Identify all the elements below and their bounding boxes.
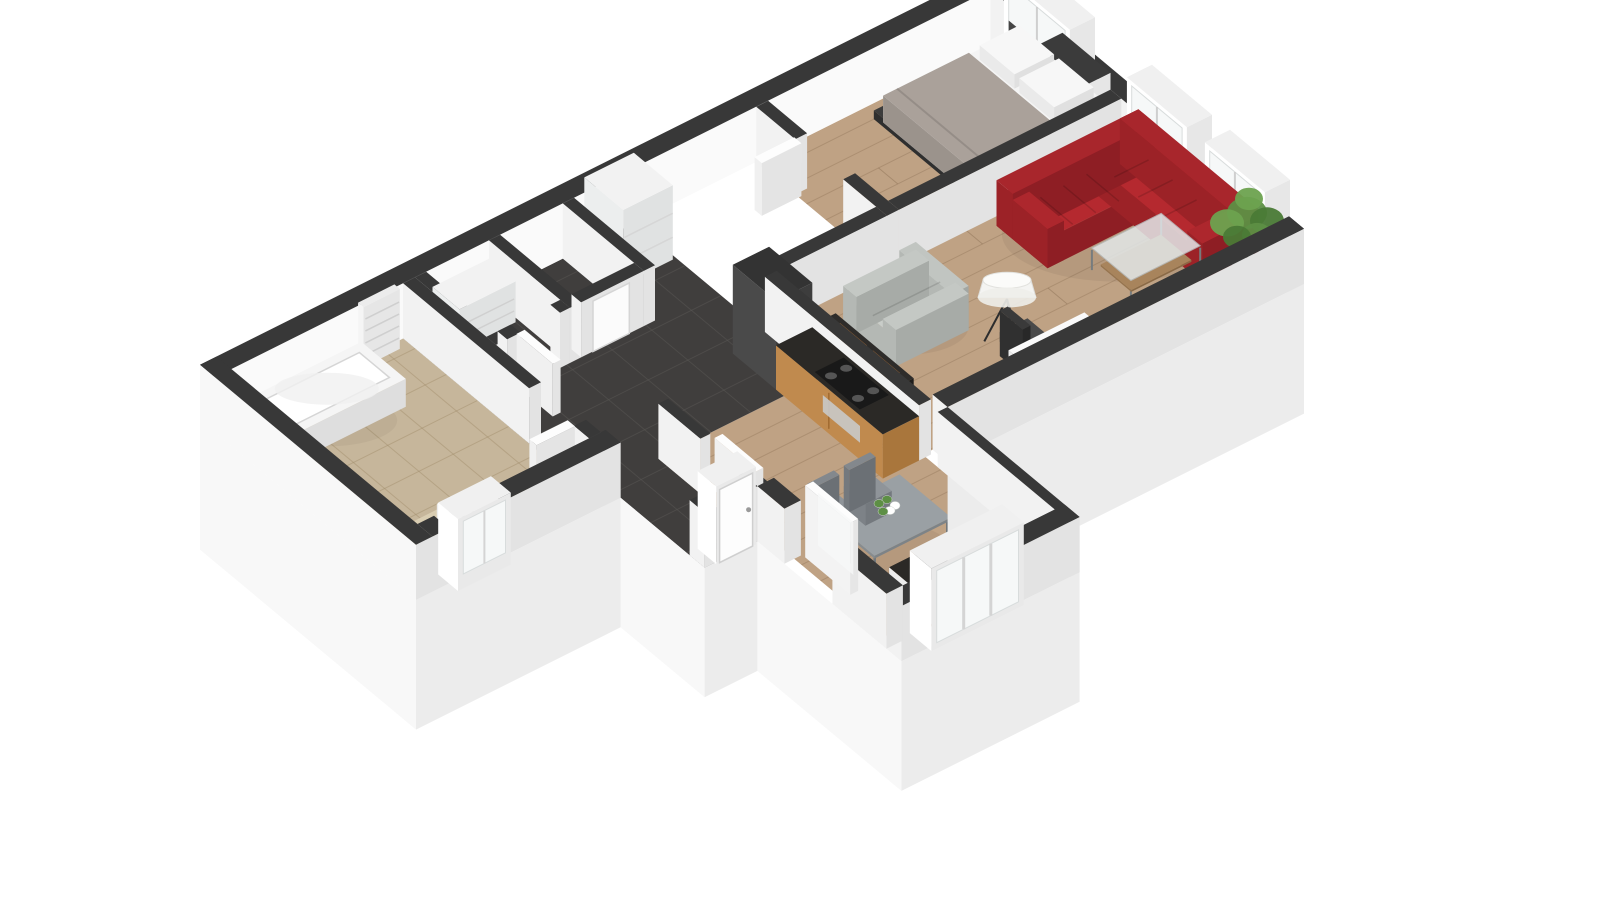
floorplan-3d <box>0 0 1600 900</box>
floorplan-page: RE/MAX <box>0 0 1600 900</box>
